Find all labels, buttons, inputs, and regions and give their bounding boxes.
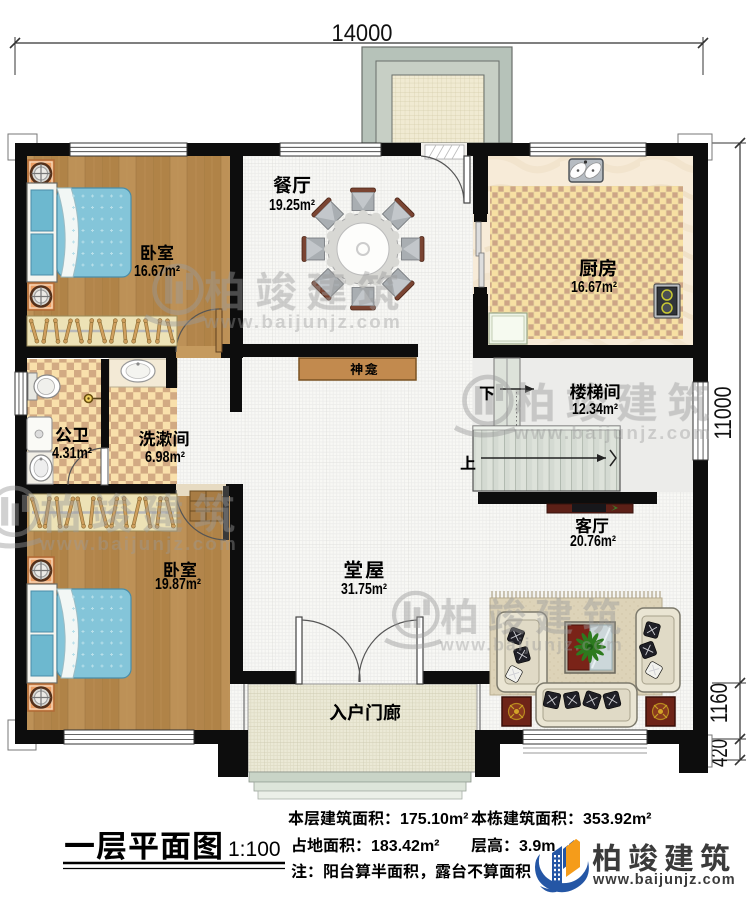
svg-text:16.67m²: 16.67m² [571, 279, 617, 296]
svg-text:19.25m²: 19.25m² [269, 197, 315, 214]
svg-text:www.baijunjz.com: www.baijunjz.com [39, 534, 238, 555]
svg-text:www.baijunjz.com: www.baijunjz.com [592, 872, 736, 888]
svg-text:16.67m²: 16.67m² [134, 263, 180, 280]
svg-text:11000: 11000 [710, 387, 737, 440]
svg-text:12.34m²: 12.34m² [572, 401, 618, 418]
svg-text:4.31m²: 4.31m² [52, 445, 92, 462]
svg-text:www.baijunjz.com: www.baijunjz.com [203, 312, 402, 333]
svg-text:3.9m: 3.9m [519, 838, 555, 855]
svg-text:31.75m²: 31.75m² [341, 581, 387, 598]
svg-text:183.42m²: 183.42m² [371, 838, 440, 855]
svg-text:353.92m²: 353.92m² [583, 811, 652, 828]
svg-text:14000: 14000 [332, 20, 393, 47]
svg-text:20.76m²: 20.76m² [570, 533, 616, 550]
svg-text:www.baijunjz.com: www.baijunjz.com [439, 635, 624, 655]
svg-text:1:100: 1:100 [228, 838, 281, 861]
svg-text:175.10m²: 175.10m² [400, 811, 469, 828]
svg-text:6.98m²: 6.98m² [145, 449, 185, 466]
svg-text:1160: 1160 [706, 683, 733, 723]
svg-text:19.87m²: 19.87m² [155, 576, 201, 593]
svg-text:www.baijunjz.com: www.baijunjz.com [513, 423, 712, 444]
